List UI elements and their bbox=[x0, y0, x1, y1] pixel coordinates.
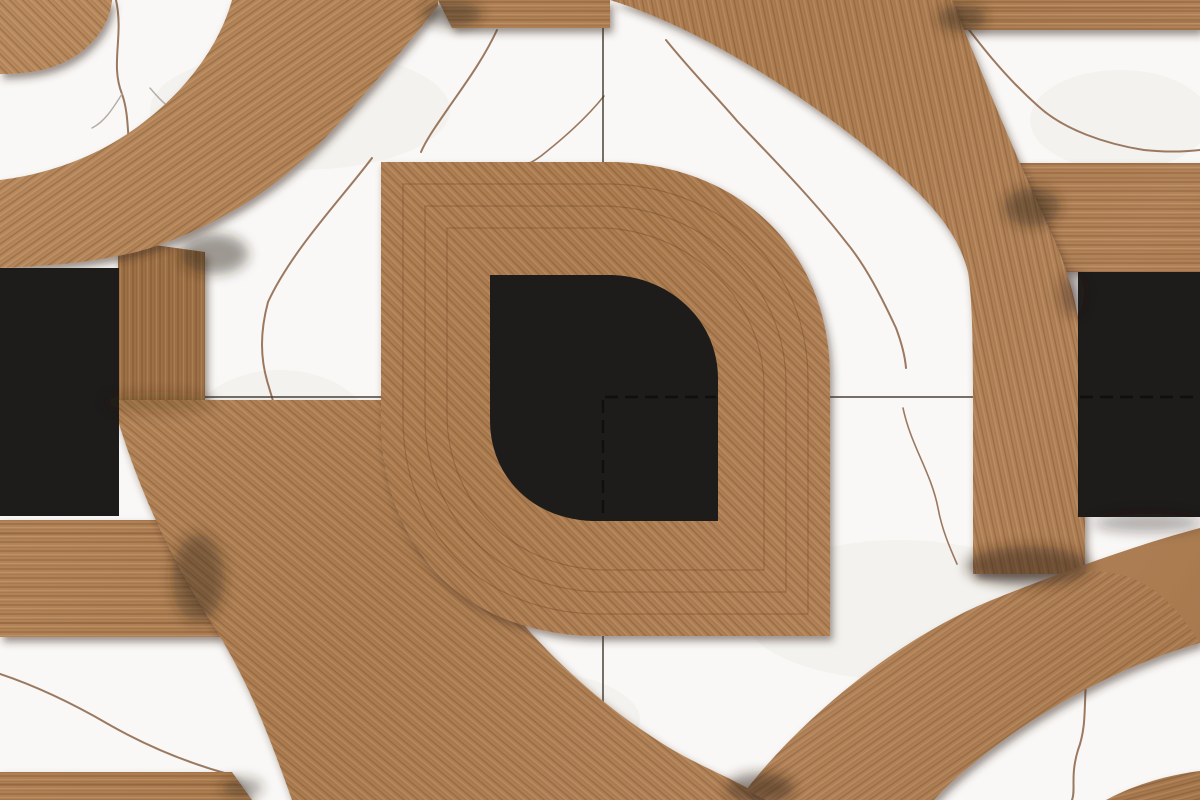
bar-bottom-left bbox=[0, 772, 252, 800]
black-square-left bbox=[0, 268, 119, 516]
tile-pattern-image bbox=[0, 0, 1200, 800]
bar-top-right bbox=[950, 0, 1200, 30]
black-square-right bbox=[1078, 272, 1200, 517]
tile-pattern-figure bbox=[0, 0, 1200, 800]
